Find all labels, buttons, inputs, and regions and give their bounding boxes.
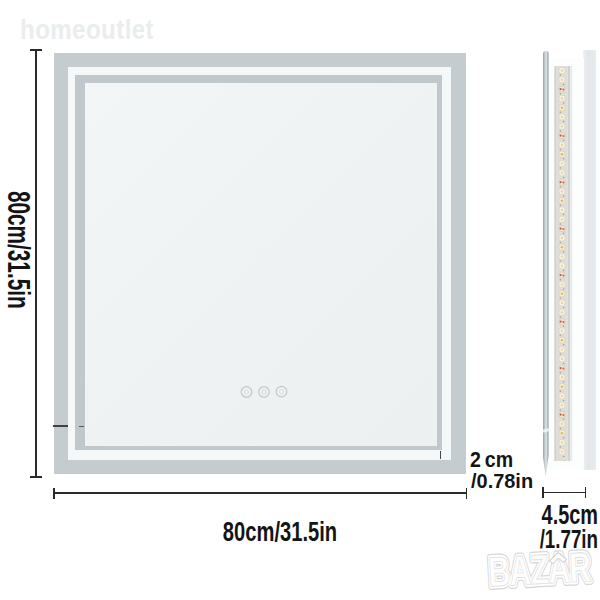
- svg-text:BAZAR: BAZAR: [487, 543, 592, 595]
